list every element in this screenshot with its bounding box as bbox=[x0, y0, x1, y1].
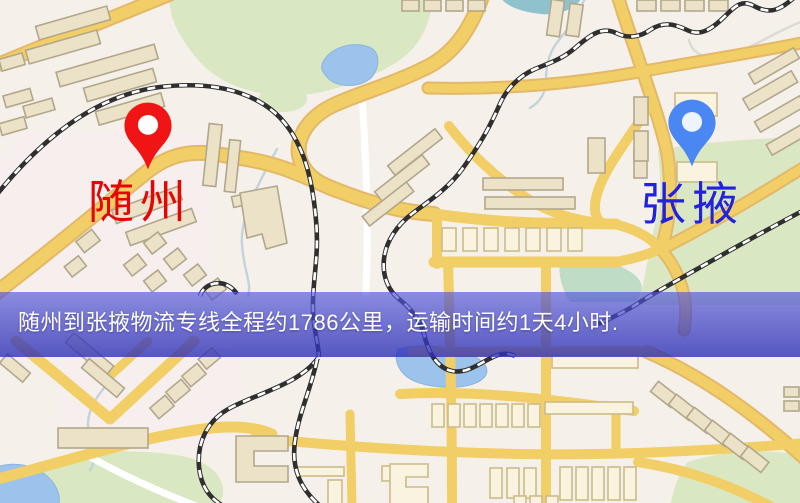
destination-label: 张掖 bbox=[640, 180, 744, 228]
origin-pin-icon bbox=[122, 101, 174, 171]
route-info-text: 随州到张掖物流专线全程约1786公里，运输时间约1天4小时. bbox=[18, 311, 619, 335]
origin-label: 随州 bbox=[88, 178, 192, 226]
map-graphic bbox=[0, 0, 800, 503]
route-info-banner: 随州到张掖物流专线全程约1786公里，运输时间约1天4小时. bbox=[0, 292, 800, 357]
route-map-image: 随州 张掖 随州到张掖物流专线全程约1786公里，运输时间约1天4小时. bbox=[0, 0, 800, 503]
destination-pin-icon bbox=[666, 98, 718, 168]
